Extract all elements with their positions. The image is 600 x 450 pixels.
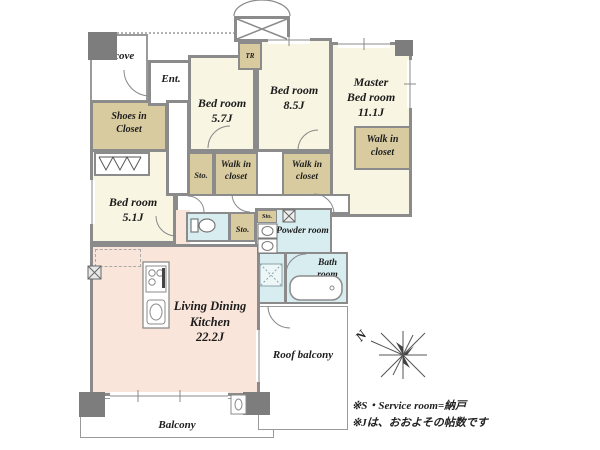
master-bedroom-label: Master Bed room 11.1J (333, 75, 409, 120)
walk-in-closet-master-label: Walk in closet (356, 134, 409, 159)
walk-in-closet-master: Walk in closet (354, 126, 411, 170)
trunk-room-label: TR (240, 52, 260, 61)
footnotes: ※S・Service room=納戸 ※Jは、おおよその帖数です (352, 398, 598, 431)
pillar (243, 392, 270, 415)
window (89, 180, 95, 224)
room-living-dining-kitchen: Living Dining Kitchen 22.2J (90, 244, 260, 396)
window (268, 37, 310, 44)
footnote-line1: ※S・Service room=納戸 (352, 398, 598, 415)
trunk-room: TR (238, 42, 262, 70)
compass-north-label: N (351, 327, 370, 345)
bedroom-5-7-label: Bed room 5.7J (191, 96, 253, 126)
entrance-label: Ent. (151, 73, 191, 87)
powder-room-label: Powder room (257, 226, 330, 238)
bath-room-label: Bath room (287, 258, 346, 282)
storage-3-label: Sto. (258, 211, 276, 222)
tatami-corner-outline (95, 249, 141, 267)
bedroom-5-1-label: Bed room 5.1J (93, 195, 173, 225)
hanger-closet (94, 152, 150, 176)
entrance-corridor (166, 100, 190, 196)
storage-2: Sto. (229, 212, 256, 242)
walk-in-closet-1-label: Walk in closet (216, 160, 256, 184)
roof-balcony-label: Roof balcony (259, 349, 347, 363)
room-bedroom-8-5: Bed room 8.5J (256, 38, 332, 152)
walk-in-closet-2: Walk in closet (282, 152, 332, 196)
window (256, 330, 263, 382)
pillar (79, 392, 105, 417)
storage-3: Sto. (257, 210, 277, 223)
floor-plan: Balcony Roof balcony Alcove Bed room 5.1… (0, 0, 600, 450)
bedroom-8-5-label: Bed room 8.5J (259, 83, 329, 113)
ldk-label: Living Dining Kitchen 22.2J (93, 299, 257, 346)
walk-in-closet-1: Walk in closet (214, 152, 258, 196)
window (407, 60, 414, 108)
compass-icon: N (351, 327, 427, 379)
window (338, 41, 390, 48)
footnote-line2: ※Jは、おおよその帖数です (352, 415, 598, 432)
shoes-in-closet-label: Shoes in Closet (93, 111, 165, 136)
roof-balcony: Roof balcony (258, 306, 348, 430)
storage-1: Sto. (188, 152, 214, 196)
wall-notch (395, 40, 413, 56)
walk-in-closet-2-label: Walk in closet (284, 160, 330, 184)
toilet-room (186, 212, 230, 242)
window (110, 392, 228, 400)
storage-2-label: Sto. (231, 224, 254, 235)
pillar (88, 32, 117, 60)
shoes-in-closet: Shoes in Closet (90, 100, 168, 152)
balcony-label: Balcony (81, 419, 273, 433)
storage-1-label: Sto. (190, 170, 212, 181)
hall-nook (256, 150, 284, 196)
double-door-arc (234, 0, 290, 16)
bath-room: Bath room (285, 252, 348, 304)
